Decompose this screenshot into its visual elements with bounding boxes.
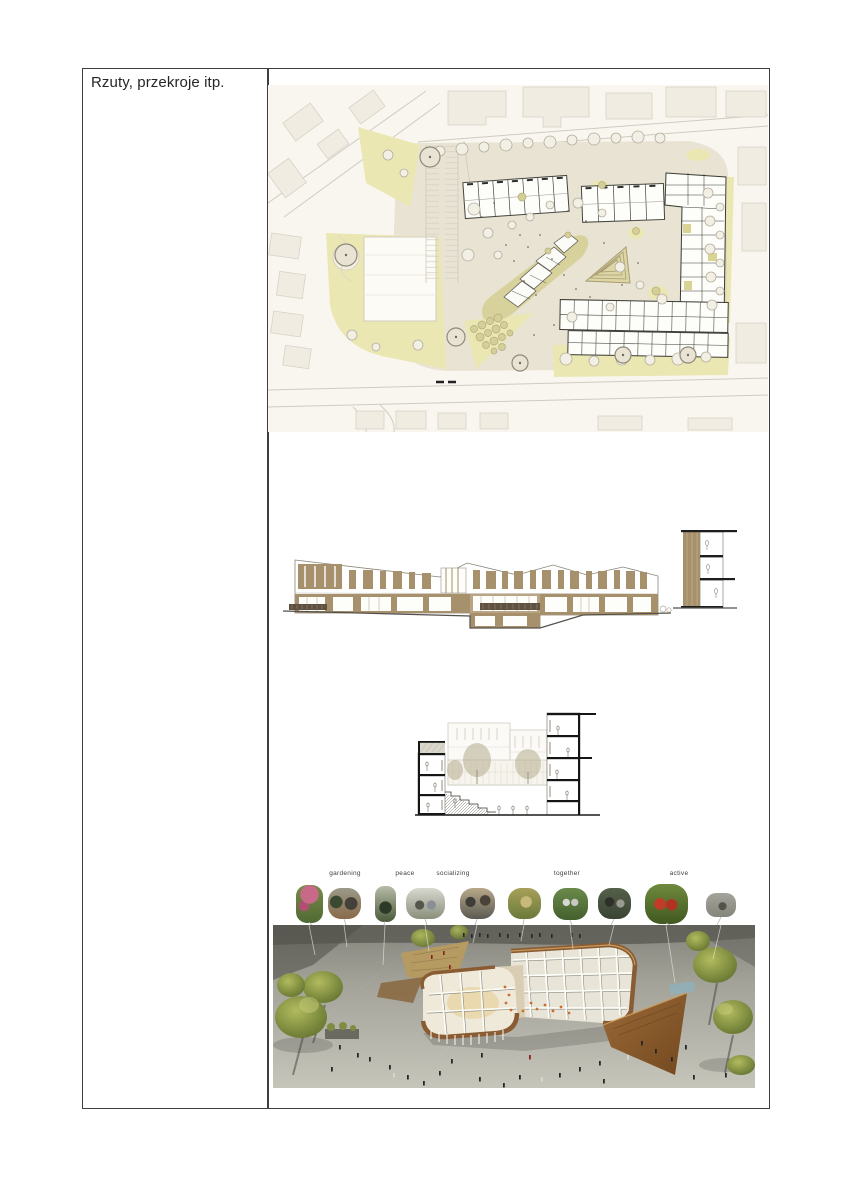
aerial-render-figure	[273, 925, 755, 1088]
section-figure	[415, 700, 600, 820]
document-page: Rzuty, przekroje itp.	[0, 0, 849, 1200]
row-label: Rzuty, przekroje itp.	[91, 74, 225, 91]
photo-strip: gardening peace socializing together act…	[273, 868, 755, 925]
row-header-cell: Rzuty, przekroje itp.	[83, 69, 267, 1108]
photo-leader-lines	[273, 868, 755, 925]
site-plan-figure	[268, 85, 768, 432]
elevation-figure	[283, 523, 737, 652]
